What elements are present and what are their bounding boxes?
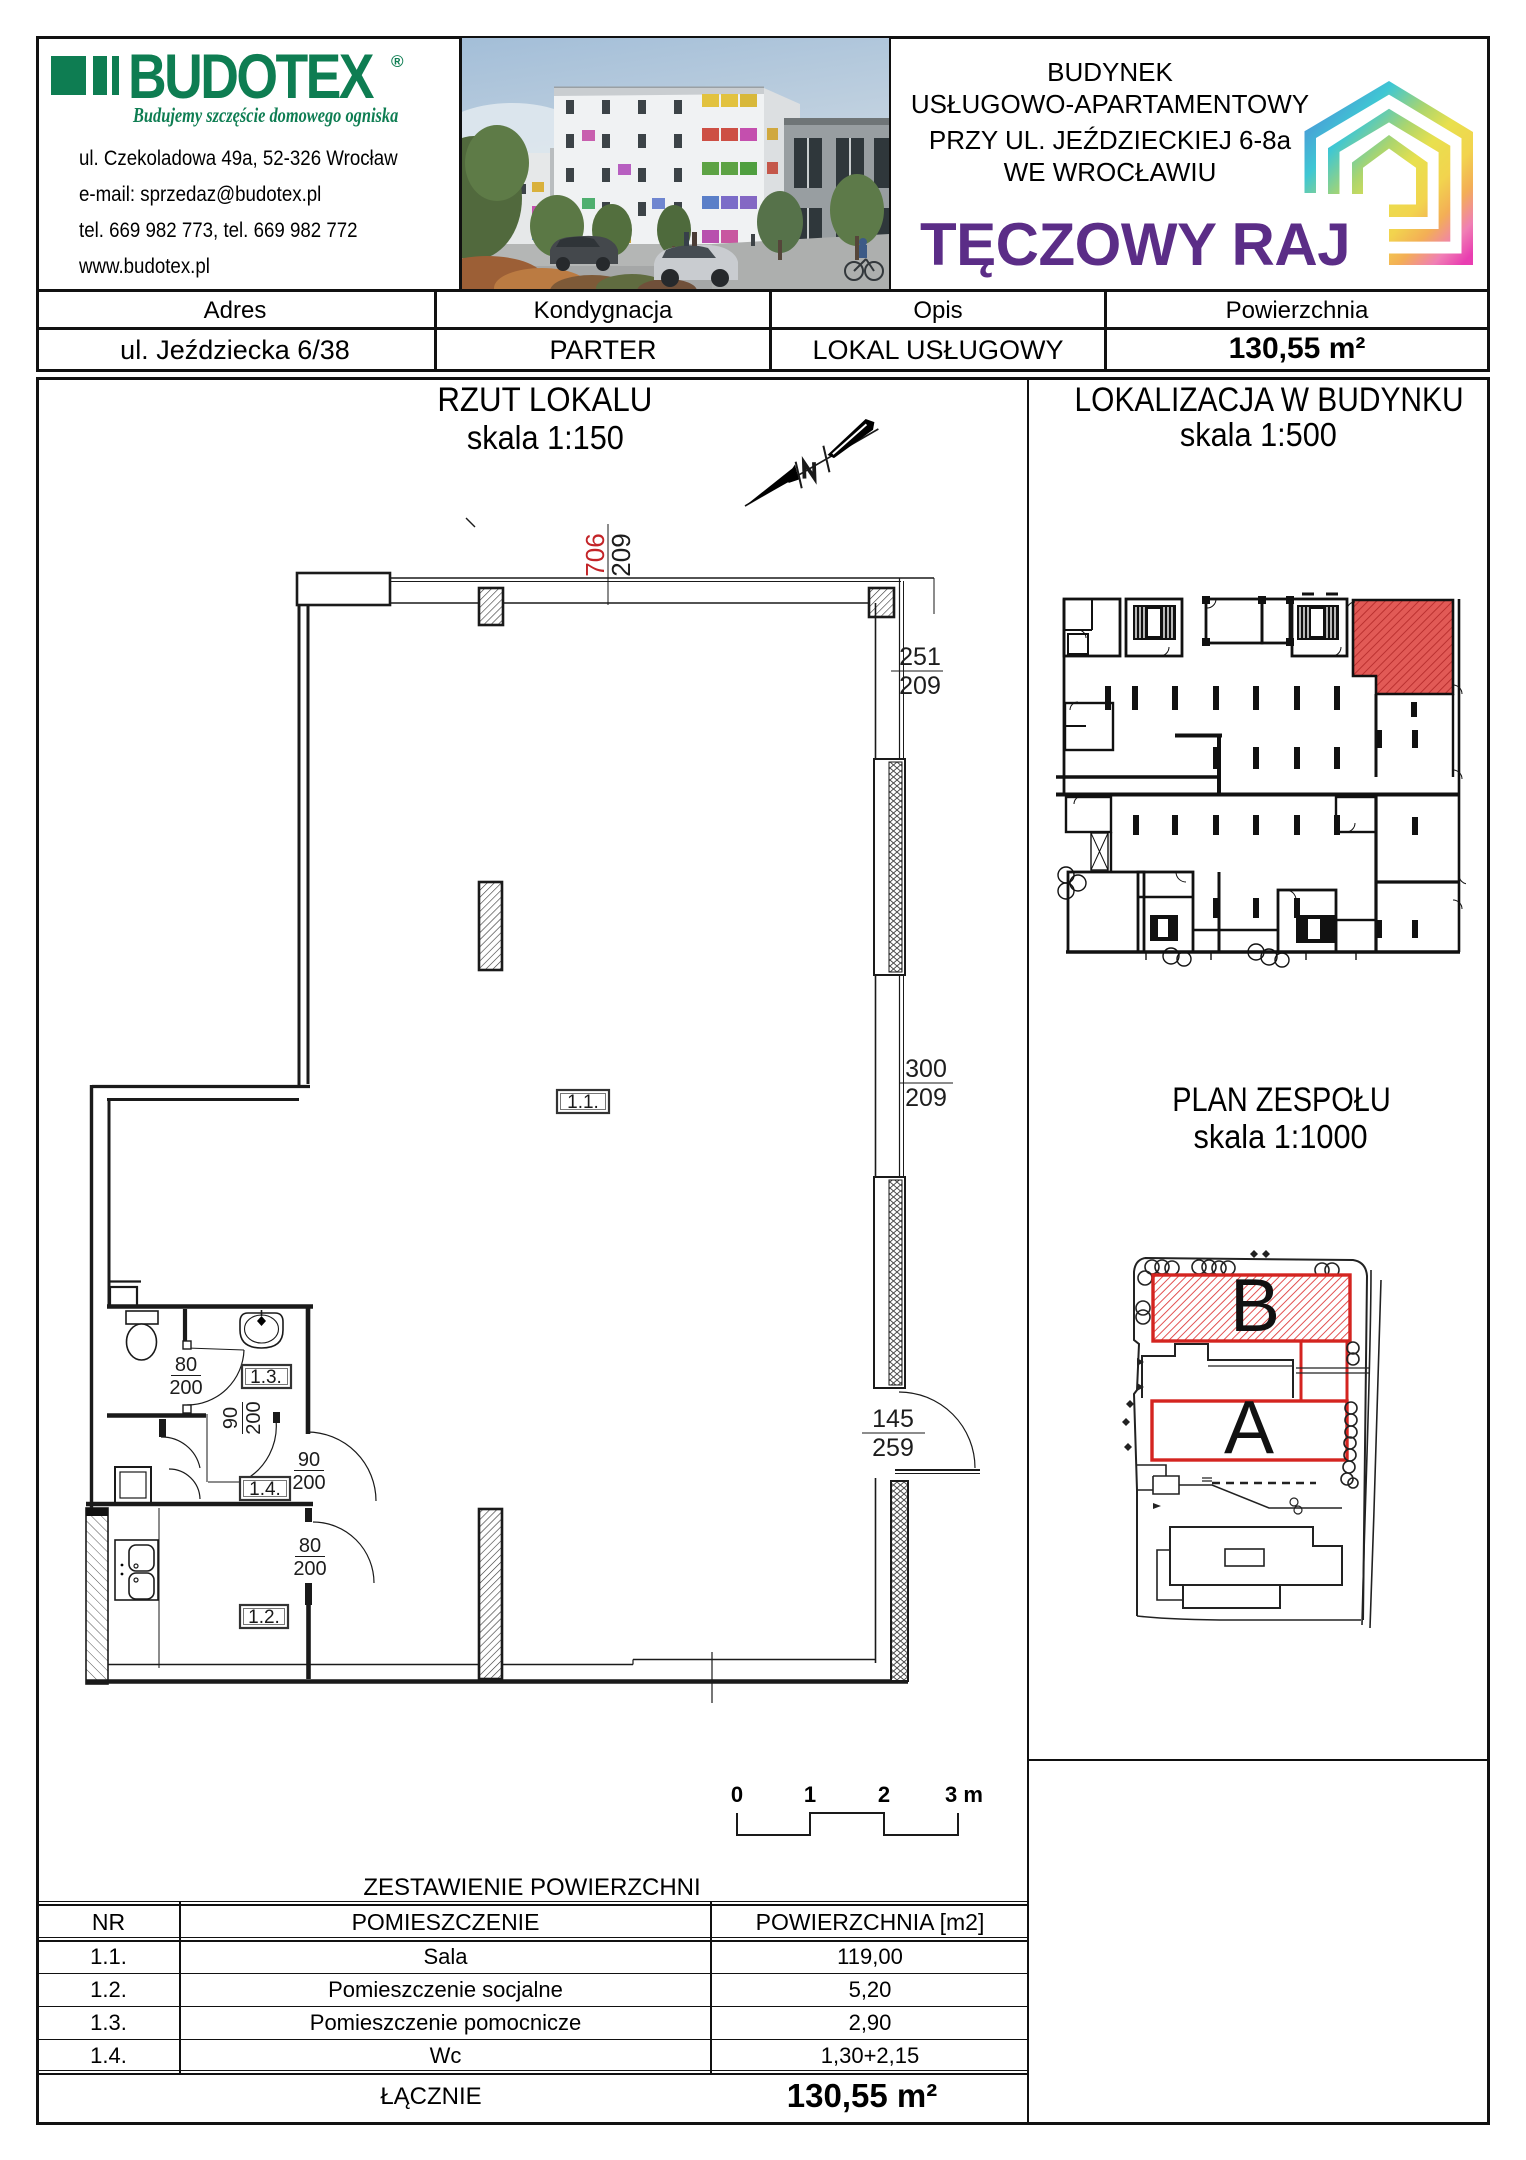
svg-text:200: 200 <box>169 1377 202 1399</box>
svg-text:90: 90 <box>220 1407 242 1429</box>
svg-text:200: 200 <box>293 1558 326 1580</box>
svg-text:209: 209 <box>899 672 941 700</box>
svg-text:1: 1 <box>804 1782 816 1807</box>
svg-text:145: 145 <box>872 1405 914 1433</box>
svg-text:A: A <box>1224 1385 1274 1469</box>
svg-text:0: 0 <box>731 1782 743 1807</box>
svg-text:209: 209 <box>606 533 636 576</box>
svg-text:200: 200 <box>243 1401 265 1434</box>
svg-text:1.1.: 1.1. <box>567 1092 599 1113</box>
svg-text:1.3.: 1.3. <box>250 1367 282 1388</box>
svg-text:1.4.: 1.4. <box>249 1479 281 1500</box>
svg-text:B: B <box>1230 1263 1280 1347</box>
svg-text:90: 90 <box>298 1449 320 1471</box>
svg-text:80: 80 <box>299 1535 321 1557</box>
svg-text:1.2.: 1.2. <box>248 1607 280 1628</box>
svg-text:251: 251 <box>899 643 941 671</box>
svg-text:300: 300 <box>905 1055 947 1083</box>
svg-text:2: 2 <box>878 1782 890 1807</box>
svg-text:209: 209 <box>905 1084 947 1112</box>
svg-text:200: 200 <box>292 1472 325 1494</box>
svg-text:3 m: 3 m <box>945 1782 983 1807</box>
svg-text:259: 259 <box>872 1434 914 1462</box>
svg-text:80: 80 <box>175 1354 197 1376</box>
